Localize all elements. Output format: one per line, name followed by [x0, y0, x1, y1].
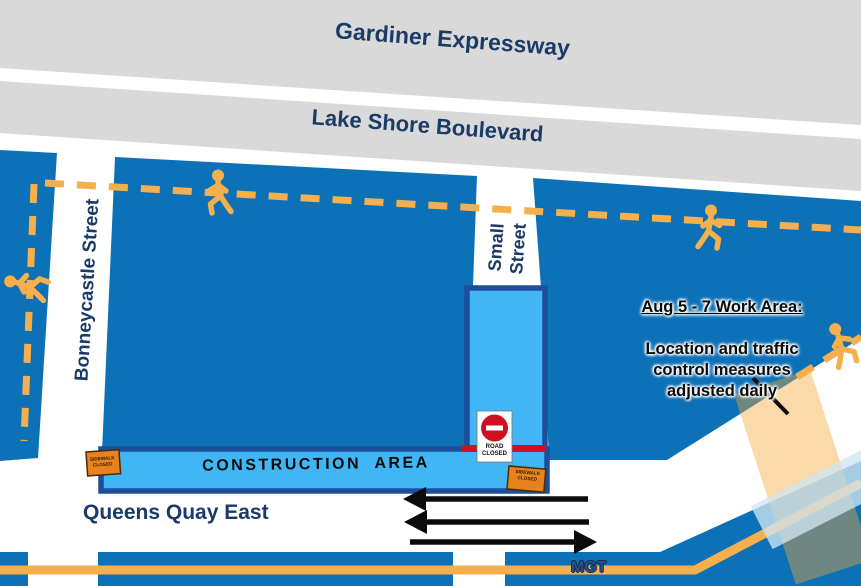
small-street-label: Small Street	[481, 187, 533, 310]
block-between-bonneycastle-and-small	[102, 157, 477, 452]
sidewalk-closed-west-text: SIDEWALK CLOSED	[86, 455, 120, 469]
construction-notice-map: Gardiner Expressway Lake Shore Boulevard…	[0, 0, 861, 586]
work-area-note-body: Location and traffic control measures ad…	[622, 339, 822, 402]
construction-area-label: CONSTRUCTION AREA	[190, 454, 442, 476]
work-area-note-heading: Aug 5 - 7 Work Area:	[622, 297, 822, 318]
mgt-trail-label: MGT	[571, 559, 607, 577]
work-area-note: Aug 5 - 7 Work Area: Location and traffi…	[622, 276, 822, 423]
queens-quay-east-label: Queens Quay East	[83, 501, 269, 525]
road-closed-sign-text: ROAD CLOSED	[477, 444, 512, 458]
